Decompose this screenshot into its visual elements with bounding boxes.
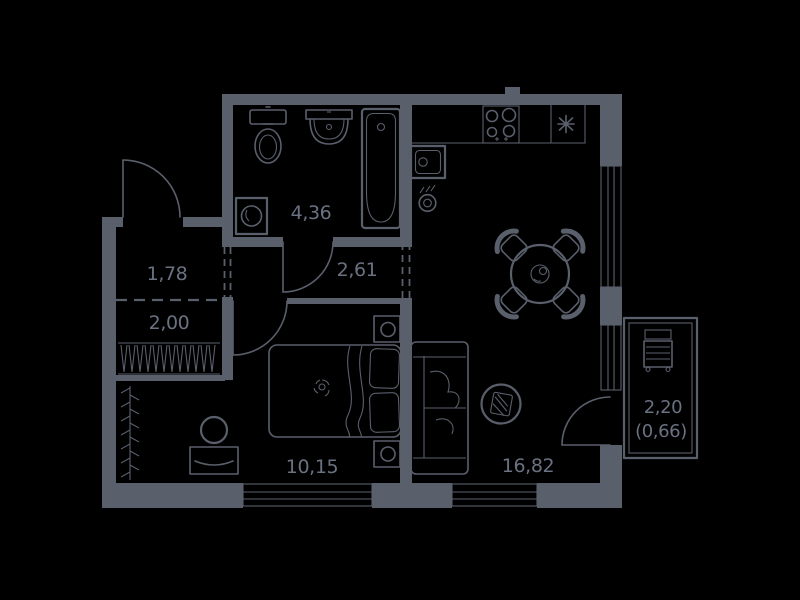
wall-right-mid	[600, 287, 622, 325]
area-label-corridor: 2,61	[337, 259, 378, 281]
wardrobe-shelves-icon	[118, 343, 220, 374]
window-bedroom-bottom	[243, 484, 372, 506]
stove-icon	[483, 106, 519, 143]
kitchen-sink-icon	[411, 146, 445, 178]
area-label-hallway: 1,78	[147, 263, 188, 285]
nightstand-icon	[374, 316, 400, 342]
area-label-balcony: 2,20	[644, 397, 682, 418]
entry-door	[123, 160, 180, 217]
area-label-bathroom: 4,36	[291, 202, 332, 224]
wall-hall-top-a	[102, 217, 123, 227]
floor-plan-canvas: 1,78 2,00 4,36 2,61 10,15 16,82 2,20 (0,…	[0, 0, 800, 600]
refrigerator-snowflake-icon	[551, 105, 574, 143]
balcony-cabinet-icon	[644, 330, 672, 372]
area-label-closet: 2,00	[149, 312, 190, 334]
bathroom-door	[283, 242, 333, 292]
wall-top-notch	[505, 87, 520, 94]
dresser-with-mirror-icon	[190, 417, 238, 474]
dining-table-icon	[511, 245, 569, 303]
wash-basin-icon	[306, 110, 352, 144]
area-label-kitchen-living: 16,82	[502, 455, 554, 477]
bedroom-door	[233, 301, 287, 355]
toilet-icon	[250, 107, 286, 163]
balcony-door	[562, 397, 610, 445]
wall-bottom-right	[537, 483, 622, 508]
nightstand-icon	[374, 441, 400, 467]
pillow	[369, 349, 399, 389]
opening-hall-corridor	[225, 247, 231, 297]
wall-left	[102, 217, 116, 483]
area-label-bedroom: 10,15	[286, 456, 338, 478]
bathtub-icon	[362, 109, 400, 228]
wall-mid-left-upper	[222, 94, 233, 247]
sofa-icon	[411, 342, 468, 474]
bedroom-fixtures	[121, 316, 401, 480]
area-label-balcony-reduced: (0,66)	[635, 421, 687, 442]
wall-bottom-left	[102, 483, 243, 508]
flower-decor	[314, 380, 329, 396]
wall-bedroom-top	[287, 298, 412, 304]
window-living-bottom	[452, 484, 537, 506]
kitchen-fixtures	[411, 105, 585, 317]
opening-corridor-kitchen	[403, 243, 410, 298]
window-kitchen-right	[601, 166, 621, 287]
wall-hall-top-b	[183, 217, 222, 227]
coat-rack-icon	[121, 386, 139, 480]
wall-top	[222, 94, 622, 105]
electrical-panel-icon	[482, 385, 521, 424]
wall-bottom-mid	[372, 483, 452, 508]
chair-icon	[551, 285, 583, 317]
washing-machine-icon	[236, 198, 267, 234]
double-bed-icon	[269, 345, 401, 437]
wall-closet-bottom	[113, 375, 225, 381]
wall-bath-bottom-a	[233, 237, 283, 247]
window-balcony-right	[601, 325, 621, 390]
wall-right-lower	[600, 445, 622, 483]
chair-icon	[551, 231, 583, 263]
chair-icon	[497, 285, 529, 317]
floor-plan: 1,78 2,00 4,36 2,61 10,15 16,82 2,20 (0,…	[0, 0, 800, 600]
wall-right-upper	[600, 105, 622, 166]
chair-icon	[497, 231, 529, 263]
wall-mid-left-lower	[222, 297, 233, 380]
towel-dryer-icon	[419, 185, 436, 211]
pillow	[369, 392, 399, 432]
